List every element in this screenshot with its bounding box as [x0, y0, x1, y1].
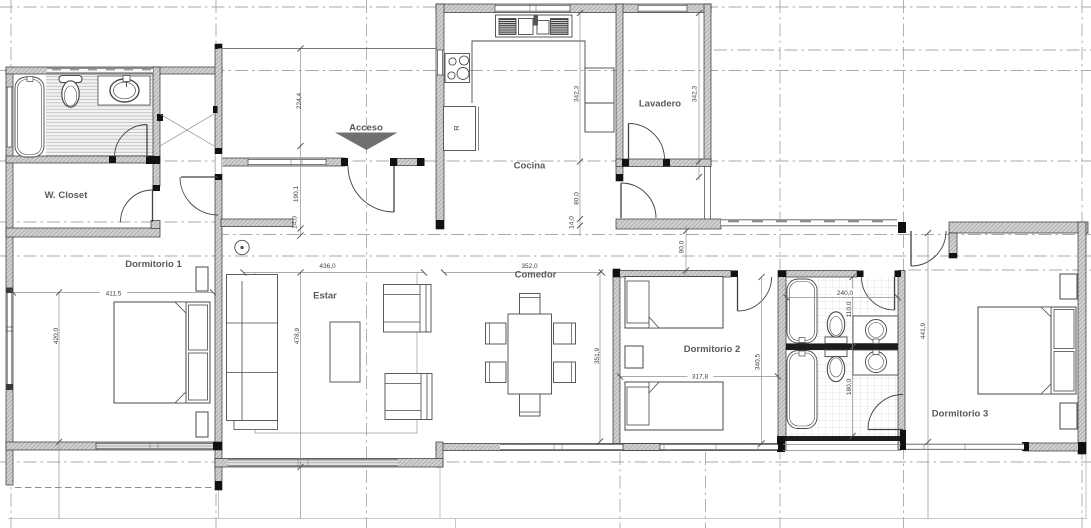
svg-text:Estar: Estar	[313, 291, 337, 302]
svg-text:436,0: 436,0	[319, 263, 336, 270]
svg-text:110,0: 110,0	[846, 301, 853, 317]
svg-text:Dormitorio 2: Dormitorio 2	[684, 344, 740, 355]
svg-text:420,0: 420,0	[53, 327, 60, 344]
svg-text:W. Closet: W. Closet	[45, 190, 89, 201]
svg-text:Lavadero: Lavadero	[639, 99, 681, 110]
svg-text:Dormitorio 3: Dormitorio 3	[932, 409, 988, 420]
svg-text:14,0: 14,0	[292, 216, 299, 229]
svg-text:80,0: 80,0	[574, 192, 581, 205]
svg-text:R: R	[452, 125, 461, 131]
svg-text:351,9: 351,9	[594, 347, 601, 364]
svg-text:342,3: 342,3	[692, 85, 699, 102]
svg-text:Cocina: Cocina	[514, 161, 546, 172]
svg-text:411,5: 411,5	[106, 291, 122, 298]
svg-text:190,1: 190,1	[293, 185, 300, 202]
svg-text:317,8: 317,8	[692, 374, 709, 381]
svg-text:90,0: 90,0	[679, 240, 686, 253]
svg-text:Comedor: Comedor	[515, 270, 557, 281]
svg-text:240,0: 240,0	[837, 290, 854, 297]
svg-text:224,4: 224,4	[296, 92, 303, 109]
svg-text:340,5: 340,5	[755, 353, 762, 370]
svg-text:Dormitorio 1: Dormitorio 1	[125, 259, 182, 270]
svg-text:342,3: 342,3	[574, 85, 581, 102]
svg-text:14,0: 14,0	[569, 216, 576, 229]
svg-text:478,9: 478,9	[294, 327, 301, 344]
svg-text:441,9: 441,9	[920, 322, 927, 339]
svg-text:Acceso: Acceso	[349, 123, 383, 134]
svg-text:180,0: 180,0	[846, 378, 853, 395]
